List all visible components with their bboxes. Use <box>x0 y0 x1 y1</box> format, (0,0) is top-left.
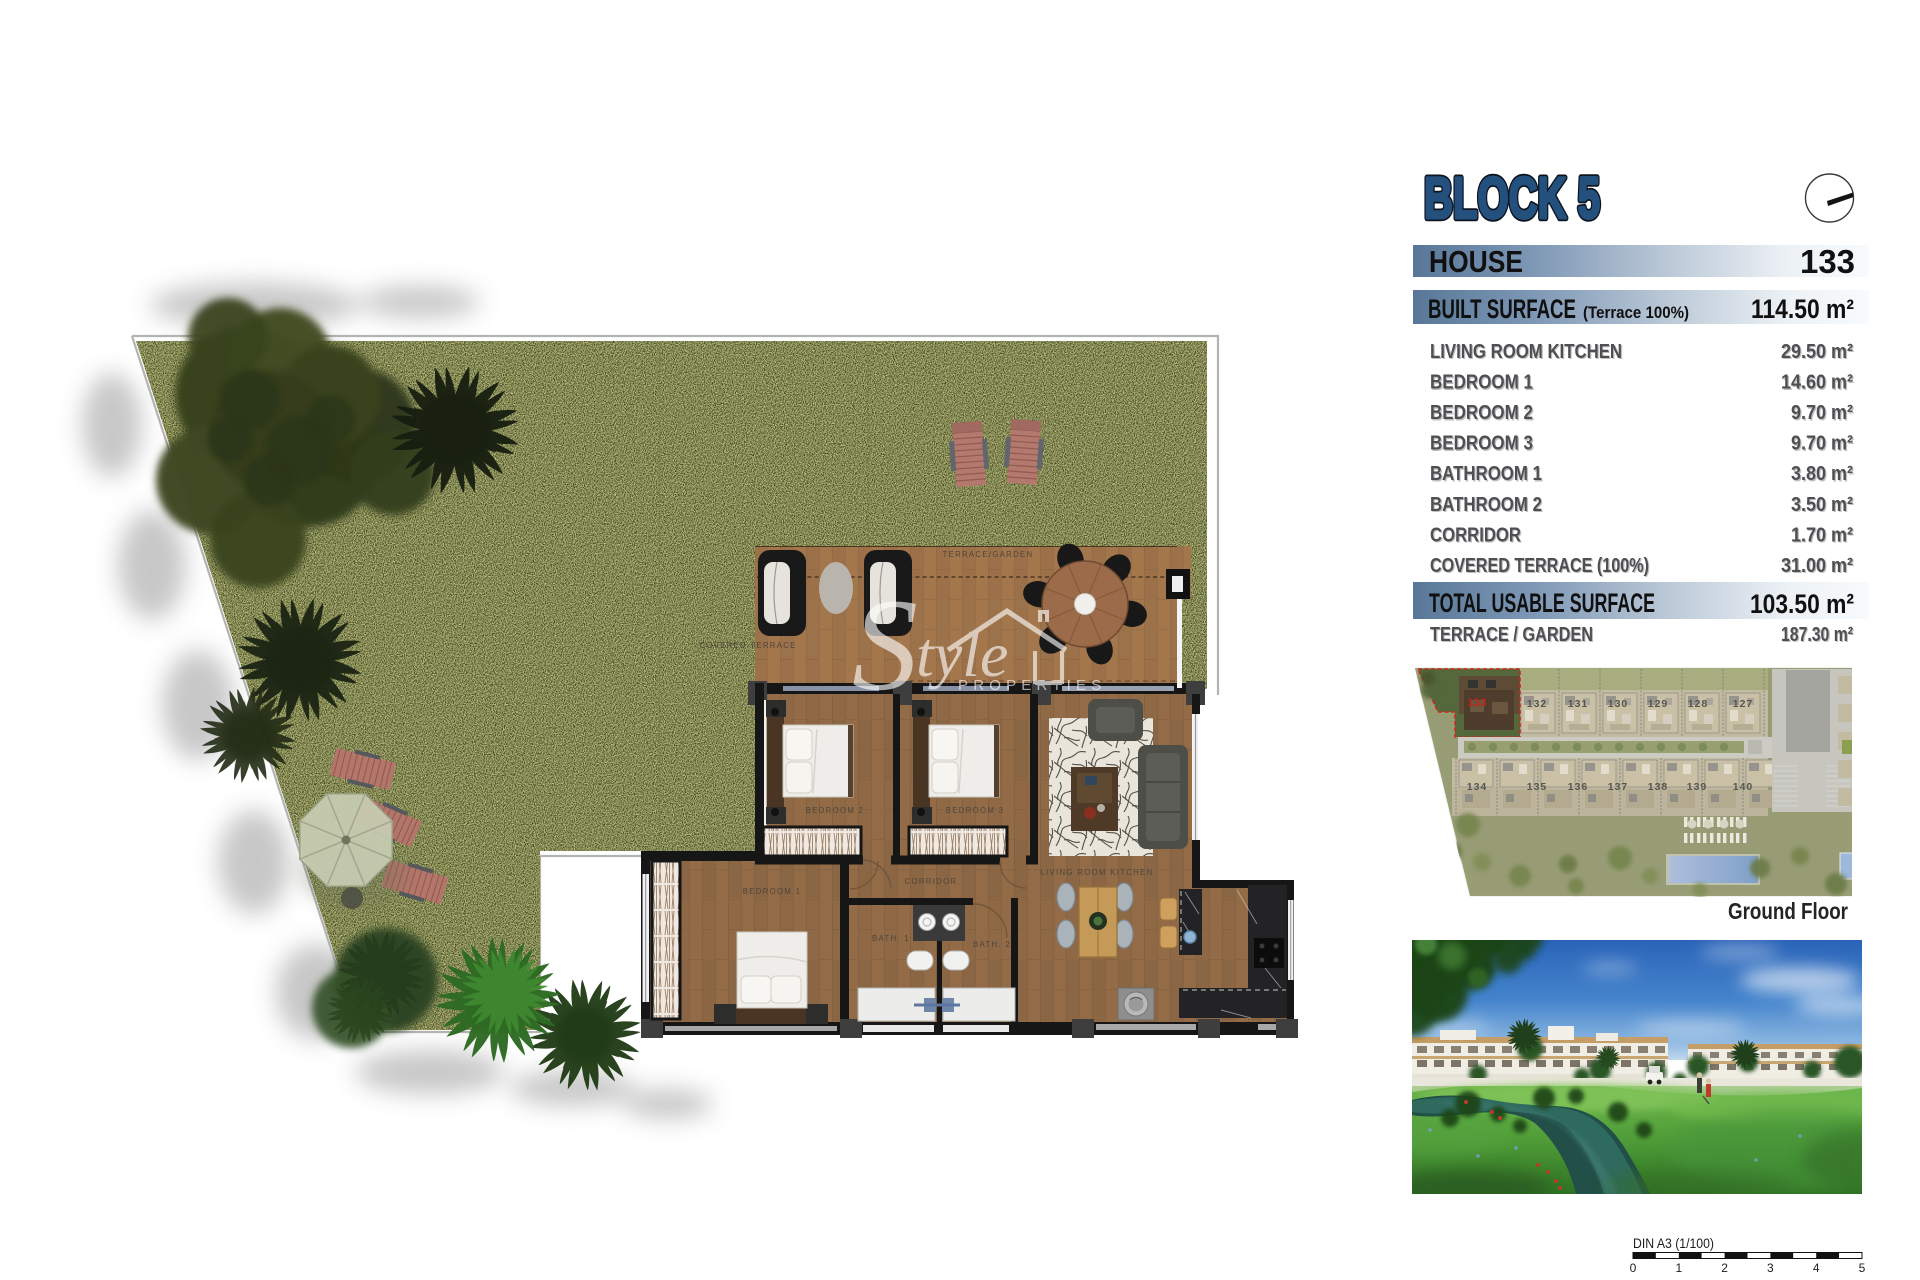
svg-text:BEDROOM 1: BEDROOM 1 <box>1430 371 1533 394</box>
svg-text:1.70 m²: 1.70 m² <box>1791 523 1853 546</box>
svg-text:136: 136 <box>1568 781 1589 793</box>
svg-text:140: 140 <box>1733 781 1754 793</box>
svg-text:0: 0 <box>1630 1261 1637 1275</box>
svg-text:139: 139 <box>1687 781 1708 793</box>
svg-text:5: 5 <box>1859 1261 1866 1275</box>
svg-text:129: 129 <box>1648 698 1669 710</box>
svg-text:CORRIDOR: CORRIDOR <box>1430 523 1521 546</box>
svg-text:14.60 m²: 14.60 m² <box>1781 371 1853 394</box>
svg-text:4: 4 <box>1813 1261 1820 1275</box>
svg-text:HOUSE: HOUSE <box>1429 244 1523 279</box>
svg-text:3.50 m²: 3.50 m² <box>1791 493 1853 516</box>
svg-text:TERRACE / GARDEN: TERRACE / GARDEN <box>1430 623 1593 646</box>
svg-text:103.50 m²: 103.50 m² <box>1750 589 1854 619</box>
svg-text:130: 130 <box>1608 698 1629 710</box>
svg-text:134: 134 <box>1467 781 1488 793</box>
svg-text:133: 133 <box>1800 243 1855 280</box>
svg-text:BEDROOM 3: BEDROOM 3 <box>1430 432 1533 455</box>
svg-text:TERRACE/GARDEN: TERRACE/GARDEN <box>943 550 1034 559</box>
svg-text:S: S <box>852 571 918 718</box>
svg-text:BATH. 1: BATH. 1 <box>872 934 910 943</box>
svg-text:TOTAL USABLE SURFACE: TOTAL USABLE SURFACE <box>1429 588 1655 618</box>
svg-text:LIVING ROOM KITCHEN: LIVING ROOM KITCHEN <box>1430 340 1622 363</box>
svg-text:132: 132 <box>1527 698 1548 710</box>
svg-text:127: 127 <box>1733 698 1754 710</box>
svg-text:BATHROOM 2: BATHROOM 2 <box>1430 493 1542 516</box>
svg-text:3: 3 <box>1767 1261 1774 1275</box>
svg-text:9.70 m²: 9.70 m² <box>1791 432 1853 455</box>
svg-text:Ground Floor: Ground Floor <box>1728 898 1848 924</box>
svg-text:PROPERTIES: PROPERTIES <box>958 677 1106 694</box>
svg-text:BEDROOM 1: BEDROOM 1 <box>743 887 802 896</box>
svg-text:29.50 m²: 29.50 m² <box>1781 340 1853 363</box>
svg-text:114.50 m²: 114.50 m² <box>1751 294 1854 324</box>
svg-text:BLOCK 5: BLOCK 5 <box>1424 166 1600 231</box>
svg-text:137: 137 <box>1608 781 1629 793</box>
svg-text:BATHROOM 1: BATHROOM 1 <box>1430 462 1542 485</box>
svg-text:BEDROOM 3: BEDROOM 3 <box>946 806 1005 815</box>
svg-text:2: 2 <box>1721 1261 1728 1275</box>
svg-text:138: 138 <box>1648 781 1669 793</box>
svg-text:128: 128 <box>1688 698 1709 710</box>
svg-text:CORRIDOR: CORRIDOR <box>905 877 958 886</box>
svg-text:COVERED TERRACE: COVERED TERRACE <box>699 641 796 650</box>
svg-text:135: 135 <box>1527 781 1548 793</box>
svg-text:(Terrace 100%): (Terrace 100%) <box>1583 304 1689 322</box>
svg-text:BEDROOM 2: BEDROOM 2 <box>1430 401 1533 424</box>
svg-text:9.70 m²: 9.70 m² <box>1791 401 1853 424</box>
svg-text:DIN A3 (1/100): DIN A3 (1/100) <box>1633 1236 1714 1251</box>
svg-text:COVERED TERRACE (100%): COVERED TERRACE (100%) <box>1430 554 1649 577</box>
svg-text:131: 131 <box>1568 698 1589 710</box>
svg-text:BUILT SURFACE: BUILT SURFACE <box>1428 294 1576 324</box>
svg-text:187.30 m²: 187.30 m² <box>1781 623 1853 646</box>
svg-text:3.80 m²: 3.80 m² <box>1791 462 1853 485</box>
svg-text:BEDROOM 2: BEDROOM 2 <box>806 806 865 815</box>
svg-text:1: 1 <box>1675 1261 1682 1275</box>
svg-text:LIVING ROOM KITCHEN: LIVING ROOM KITCHEN <box>1040 868 1153 877</box>
svg-text:133: 133 <box>1467 697 1487 709</box>
svg-text:31.00 m²: 31.00 m² <box>1781 554 1853 577</box>
svg-text:BATH. 2: BATH. 2 <box>973 940 1011 949</box>
